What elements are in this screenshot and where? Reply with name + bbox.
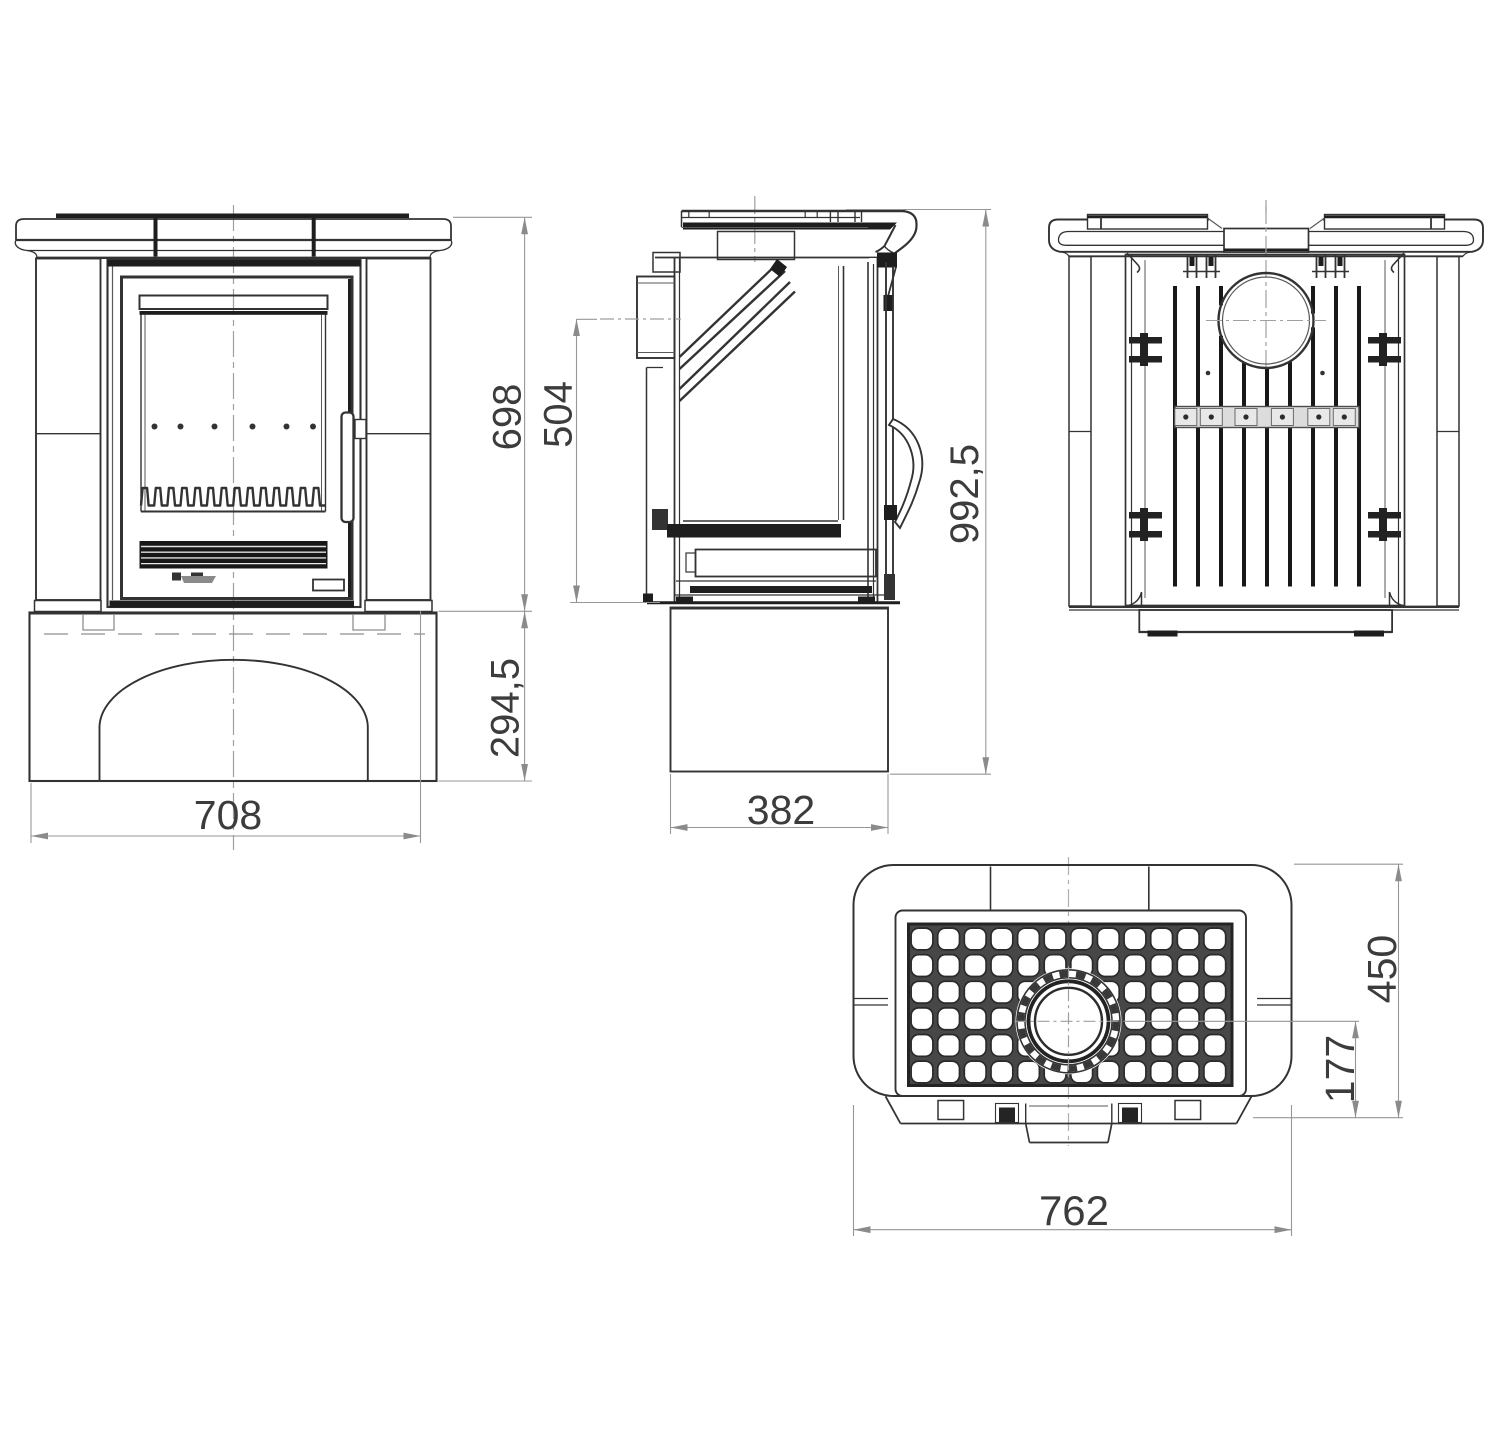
- svg-text:177: 177: [1317, 1035, 1363, 1103]
- svg-text:698: 698: [486, 384, 530, 451]
- svg-text:450: 450: [1359, 935, 1405, 1003]
- svg-text:762: 762: [1039, 1187, 1109, 1234]
- svg-text:294,5: 294,5: [484, 658, 528, 758]
- svg-text:708: 708: [194, 792, 262, 838]
- svg-text:992,5: 992,5: [943, 444, 987, 544]
- svg-text:382: 382: [747, 787, 815, 833]
- svg-text:504: 504: [537, 381, 581, 448]
